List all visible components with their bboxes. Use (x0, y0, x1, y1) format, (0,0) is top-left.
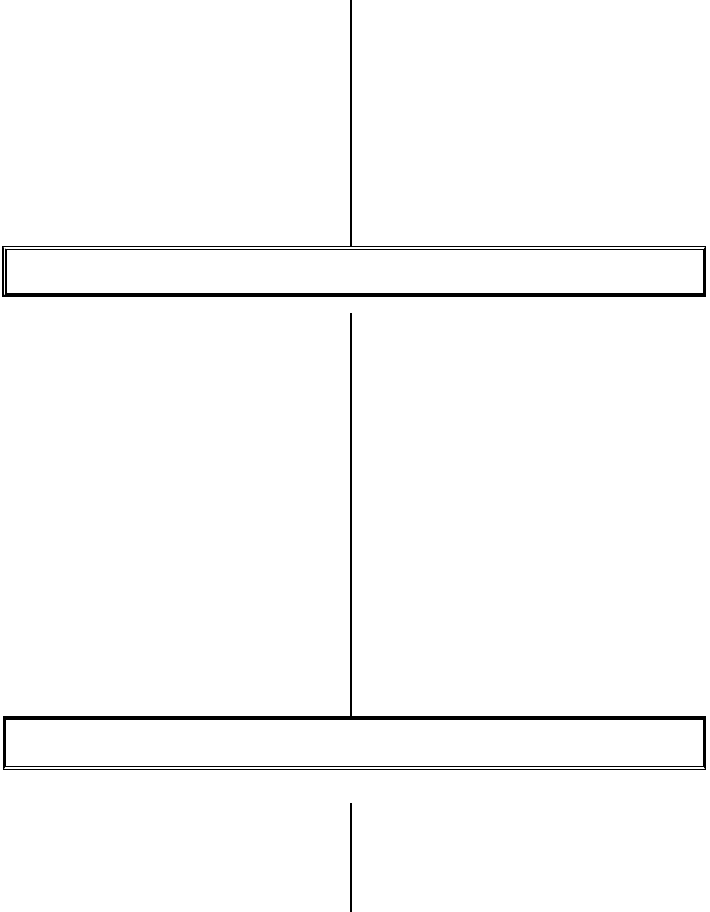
connector-line-middle (350, 313, 352, 717)
connector-line-bottom (350, 803, 352, 912)
flowchart-box-upper (2, 246, 706, 297)
scanned-page (0, 0, 710, 912)
flowchart-box-lower (3, 716, 706, 770)
connector-line-top (350, 0, 352, 247)
